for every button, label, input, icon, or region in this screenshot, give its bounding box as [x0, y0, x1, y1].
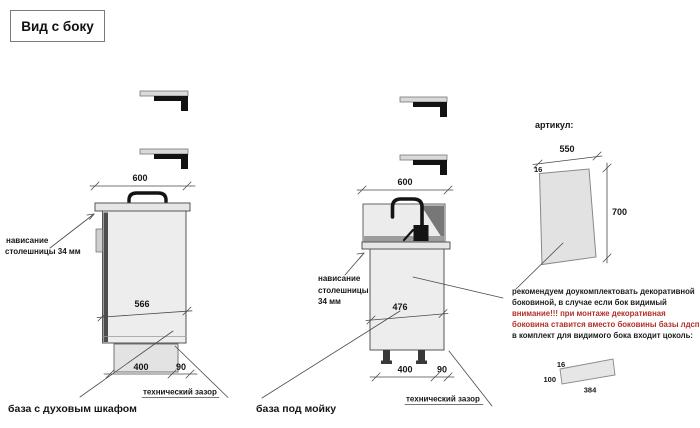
dim-label-600: 600 — [397, 177, 412, 187]
sink-base-drawing: 600 476 — [256, 97, 503, 415]
countertop-profile-icon — [140, 149, 188, 169]
sink-cabinet-body — [370, 249, 444, 350]
dim-label-384: 384 — [584, 386, 597, 395]
dim-label-600: 600 — [132, 173, 147, 183]
note-line: рекомендуем доукомплектовать декоративно… — [512, 286, 700, 297]
side-view-drawing: 600 566 400 90 — [0, 0, 700, 428]
dimension-line-600 — [90, 182, 195, 190]
oven-top-handle-icon — [129, 193, 166, 203]
sink-base-caption: база под мойку — [256, 403, 336, 415]
side-panel-drawing: артикул: 550 16 700 — [516, 120, 627, 289]
side-panel-note: рекомендуем доукомплектовать декоративно… — [512, 286, 700, 341]
overhang-arrow-icon — [50, 214, 94, 248]
overhang-label-line1: нависание — [318, 274, 361, 283]
dim-label-400: 400 — [133, 362, 148, 372]
warning-line: внимание!!! при монтаже декоративная — [512, 308, 700, 319]
oven-base-caption: база с духовым шкафом — [8, 403, 137, 415]
oven-countertop — [95, 203, 190, 211]
dim-label-550: 550 — [559, 144, 574, 154]
dim-label-16: 16 — [534, 165, 542, 174]
tech-gap-label: технический зазор — [143, 388, 217, 397]
warning-line: боковина ставится вместо боковины базы л… — [512, 319, 700, 330]
tech-gap-label: технический зазор — [406, 395, 480, 404]
oven-base-drawing: 600 566 400 90 — [5, 91, 228, 415]
dim-label-16: 16 — [557, 360, 565, 369]
overhang-label-line2: столешницы — [318, 286, 369, 295]
dim-label-90: 90 — [176, 362, 186, 372]
note-line: в комплект для видимого бока входит цоко… — [512, 330, 700, 341]
note-line: боковиной, в случае если бок видимый — [512, 297, 700, 308]
dim-label-400: 400 — [397, 365, 412, 375]
overhang-label-line3: 34 мм — [318, 297, 341, 306]
overhang-label-line2: столешницы 34 мм — [5, 247, 81, 256]
oven-cabinet-body — [103, 211, 187, 343]
technical-drawing-canvas: Вид с боку 600 — [0, 0, 700, 428]
cabinet-leg-icon — [381, 350, 392, 364]
cabinet-leg-icon — [416, 350, 427, 364]
dim-label-90: 90 — [437, 365, 447, 375]
plinth-panel — [560, 359, 615, 384]
dimension-line-550 — [533, 152, 602, 168]
overhang-arrow-icon — [345, 253, 364, 275]
countertop-profile-icon — [140, 91, 188, 111]
plinth-drawing: 16 100 384 — [543, 359, 615, 395]
caption-leader-line — [262, 311, 400, 398]
countertop-profile-icon — [400, 97, 447, 117]
oven-door-edge — [104, 213, 109, 343]
oven-door-handle-icon — [96, 229, 103, 252]
sink-countertop — [362, 242, 450, 249]
countertop-profile-icon — [400, 155, 447, 175]
dim-label-476: 476 — [392, 302, 407, 312]
panel-leader-line — [516, 243, 563, 289]
dim-label-566: 566 — [134, 299, 149, 309]
dim-label-100: 100 — [543, 375, 556, 384]
dim-label-700: 700 — [612, 207, 627, 217]
dimension-line-600 — [357, 186, 453, 194]
decorative-side-panel — [540, 169, 597, 265]
article-label: артикул: — [535, 120, 573, 130]
overhang-label-line1: нависание — [6, 236, 49, 245]
sink-icon — [363, 204, 445, 242]
dimension-line-700 — [603, 163, 611, 263]
